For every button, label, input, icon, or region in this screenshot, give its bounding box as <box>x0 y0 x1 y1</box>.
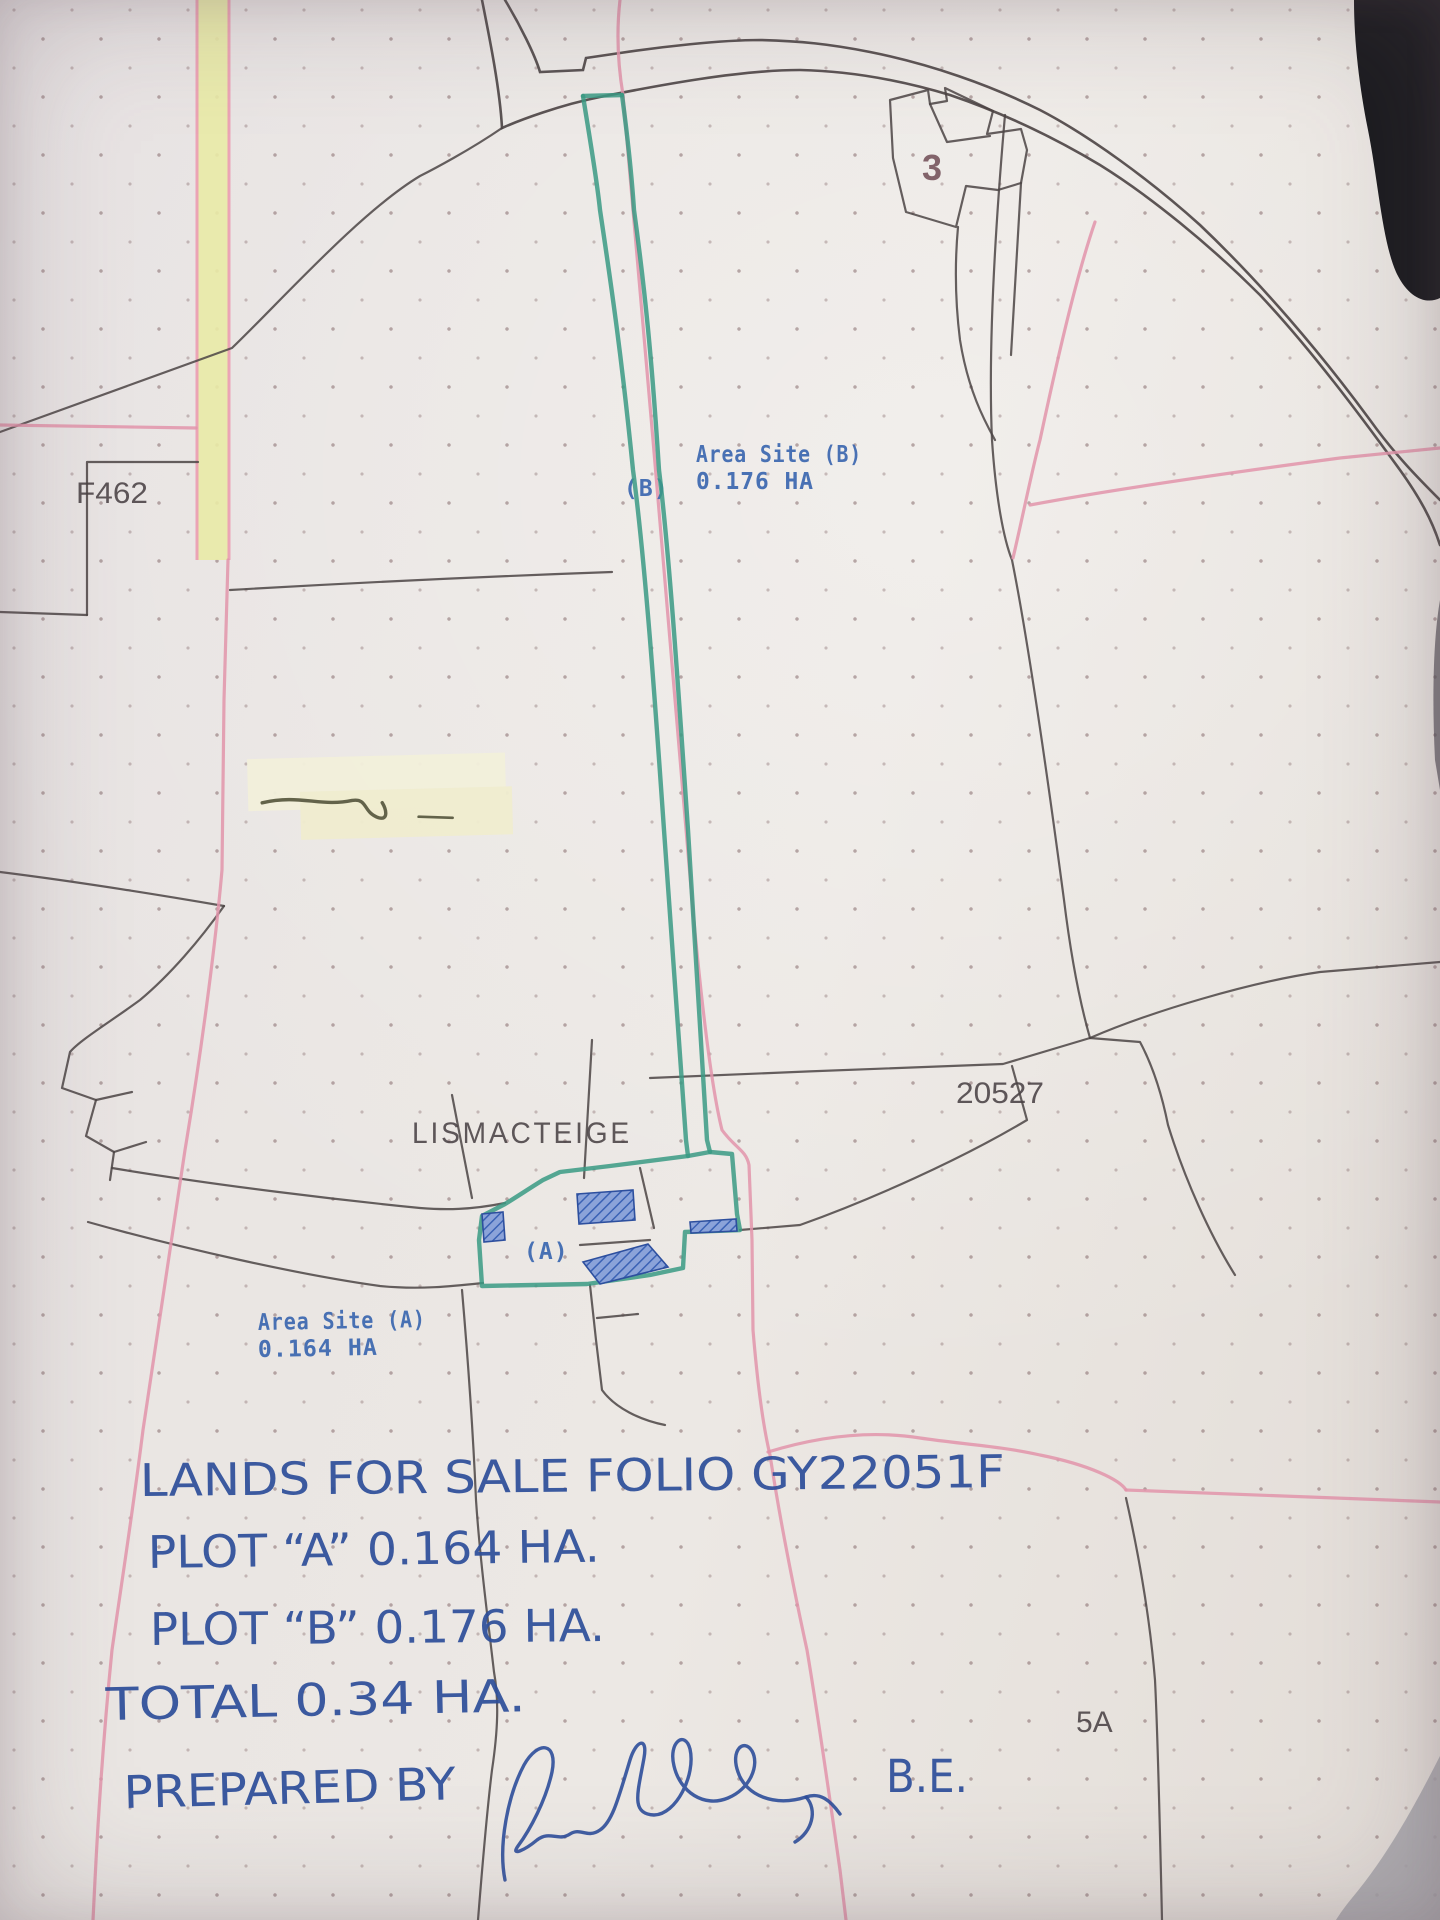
handwritten-line-3: PLOT “B” 0.176 HA. <box>150 1599 605 1656</box>
site-a-label-area: 0.164 HA <box>258 1335 378 1363</box>
whiteout-patch <box>247 752 513 841</box>
building-east-annex <box>690 1219 737 1233</box>
yellow-highlight-band <box>197 0 229 560</box>
desk-corner-shadow <box>1336 1756 1440 1920</box>
site-a-label-title: Area Site (A) <box>258 1307 426 1336</box>
map-drawing: (B) Area Site (B) 0.176 HA Area Site (A)… <box>0 0 1440 1920</box>
parcel-5a-label: 5A <box>1076 1706 1113 1739</box>
camera-dark-corner <box>1336 0 1440 1920</box>
townland-label: LISMACTEIGE <box>412 1117 632 1150</box>
survey-map-photo: (B) Area Site (B) 0.176 HA Area Site (A)… <box>0 0 1440 1920</box>
signature <box>503 1740 840 1880</box>
parcel-20527-label: 20527 <box>956 1077 1044 1110</box>
site-a-marker: (A) <box>524 1239 569 1265</box>
handwritten-line-2: PLOT “A” 0.164 HA. <box>147 1520 600 1579</box>
building-small-west <box>482 1212 505 1242</box>
site-b-label-title: Area Site (B) <box>696 442 862 468</box>
building-south <box>583 1244 668 1284</box>
parcel-f462-label: F462 <box>76 477 148 510</box>
handwritten-line-1: LANDS FOR SALE FOLIO GY22051F <box>140 1445 1006 1507</box>
site-b-label-area: 0.176 HA <box>696 469 814 495</box>
building-north <box>577 1190 635 1224</box>
paper-edge-shadow <box>1433 600 1440 790</box>
plot-outline-green <box>479 95 740 1286</box>
handwritten-line-4: TOTAL 0.34 HA. <box>104 1669 526 1731</box>
building-3-label: 3 <box>922 147 942 188</box>
prepared-by-text: PREPARED BY <box>123 1757 457 1819</box>
plot-b-strip-top <box>583 95 622 96</box>
credentials-text: B.E. <box>886 1750 968 1803</box>
buildings <box>482 1190 737 1284</box>
